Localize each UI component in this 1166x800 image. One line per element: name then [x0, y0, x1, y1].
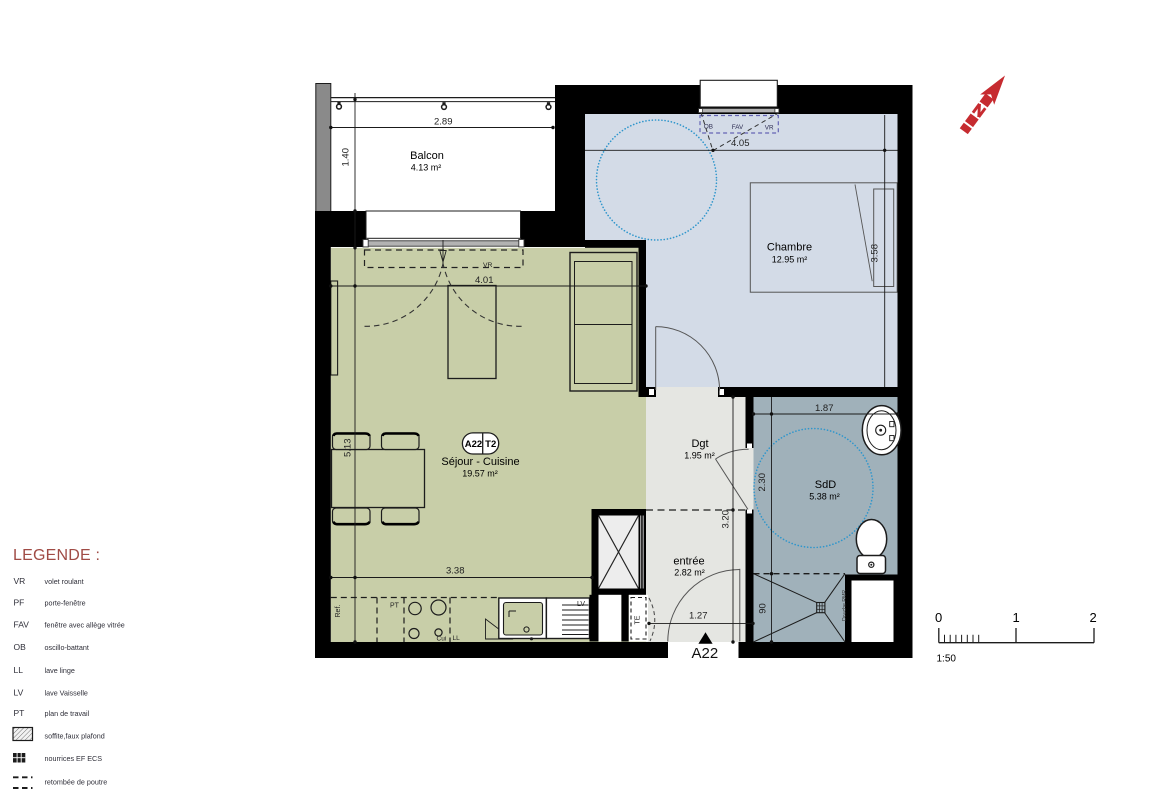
svg-text:1.95 m²: 1.95 m²: [684, 450, 715, 460]
svg-text:4.01: 4.01: [475, 275, 494, 286]
svg-text:3.38: 3.38: [446, 566, 465, 577]
svg-text:FAV: FAV: [732, 124, 744, 131]
svg-text:LL: LL: [14, 665, 24, 675]
svg-text:VR: VR: [483, 262, 493, 269]
svg-text:1:50: 1:50: [937, 654, 957, 665]
svg-text:PT: PT: [14, 708, 25, 718]
svg-text:Balcon: Balcon: [410, 150, 444, 162]
svg-text:5.38 m²: 5.38 m²: [809, 492, 840, 502]
svg-text:porte-fenêtre: porte-fenêtre: [45, 599, 86, 608]
svg-text:A22: A22: [692, 645, 719, 662]
svg-text:1.87: 1.87: [815, 403, 834, 414]
svg-text:2: 2: [1090, 610, 1097, 625]
svg-text:oscillo-battant: oscillo-battant: [45, 643, 89, 652]
svg-text:1.27: 1.27: [689, 610, 708, 621]
svg-text:LV: LV: [577, 601, 585, 608]
svg-text:5.13: 5.13: [343, 439, 354, 458]
svg-text:0: 0: [935, 610, 942, 625]
svg-text:LEGENDE :: LEGENDE :: [13, 547, 100, 564]
svg-text:lave linge: lave linge: [45, 666, 75, 675]
svg-text:A22: A22: [465, 439, 482, 450]
svg-text:Cui: Cui: [437, 636, 447, 643]
svg-text:3.20: 3.20: [721, 510, 732, 529]
svg-text:1.40: 1.40: [341, 148, 352, 167]
svg-text:3.58: 3.58: [870, 244, 881, 263]
svg-text:OB: OB: [14, 642, 27, 652]
svg-text:1: 1: [1013, 610, 1020, 625]
svg-text:LL: LL: [453, 635, 461, 642]
svg-text:OB: OB: [704, 123, 713, 130]
svg-text:2.82 m²: 2.82 m²: [674, 567, 705, 577]
svg-text:fenêtre avec allège vitrée: fenêtre avec allège vitrée: [45, 621, 125, 630]
svg-text:PT: PT: [390, 603, 400, 610]
svg-text:Séjour - Cuisine: Séjour - Cuisine: [441, 456, 519, 468]
svg-text:LV: LV: [14, 688, 24, 698]
svg-text:T2: T2: [485, 439, 496, 450]
svg-text:soffite,faux plafond: soffite,faux plafond: [45, 732, 105, 741]
svg-text:retombée de poutre: retombée de poutre: [45, 777, 108, 786]
svg-text:Chambre: Chambre: [767, 242, 812, 254]
svg-text:volet roulant: volet roulant: [45, 577, 84, 586]
svg-text:4.05: 4.05: [731, 138, 750, 149]
svg-text:nourrices EF ECS: nourrices EF ECS: [45, 754, 103, 763]
svg-text:90: 90: [758, 603, 769, 614]
svg-text:Ref.: Ref.: [335, 605, 342, 618]
svg-text:19.57 m²: 19.57 m²: [462, 468, 498, 478]
svg-text:2.89: 2.89: [434, 116, 453, 127]
svg-text:FAV: FAV: [14, 620, 30, 630]
svg-text:VR: VR: [14, 576, 26, 586]
svg-text:Douche RMR: Douche RMR: [842, 590, 848, 621]
svg-text:4.13 m²: 4.13 m²: [411, 162, 442, 172]
svg-text:lave Vaisselle: lave Vaisselle: [45, 689, 88, 698]
svg-text:TE: TE: [635, 615, 642, 624]
svg-text:plan de travail: plan de travail: [45, 709, 90, 718]
svg-text:SdD: SdD: [815, 479, 836, 491]
svg-text:VR: VR: [765, 125, 774, 132]
svg-text:12.95 m²: 12.95 m²: [772, 254, 808, 264]
svg-text:2.30: 2.30: [757, 473, 768, 492]
svg-text:Dgt: Dgt: [691, 438, 708, 450]
svg-text:PF: PF: [14, 598, 25, 608]
svg-text:entrée: entrée: [673, 555, 704, 567]
